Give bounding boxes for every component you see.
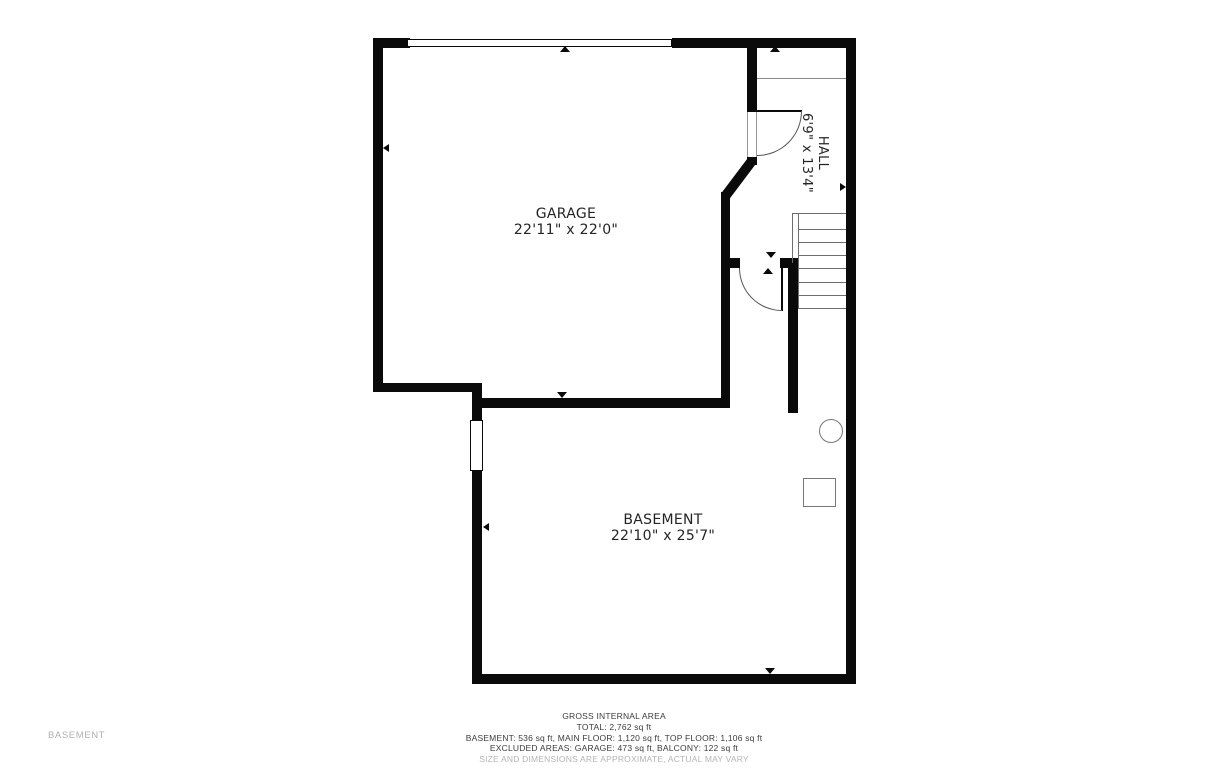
hall-landing-line (757, 78, 846, 79)
garage-door-symbol (407, 39, 672, 47)
staircase (792, 213, 846, 308)
area-summary-total: TOTAL: 2,762 sq ft (364, 722, 864, 733)
garage-room-dims: 22'11" x 22'0" (466, 222, 666, 238)
wall-basement-left-upper (472, 392, 482, 421)
marker-door-hall-side (766, 252, 776, 258)
area-summary-floors: BASEMENT: 536 sq ft, MAIN FLOOR: 1,120 s… (364, 733, 864, 744)
hall-room-name: HALL (814, 93, 830, 213)
marker-basement-bottom (765, 668, 775, 674)
hall-room-dims: 6'9" x 13'4" (798, 93, 814, 213)
area-summary: GROSS INTERNAL AREA TOTAL: 2,762 sq ft B… (364, 711, 864, 765)
wall-door-stub-left (721, 258, 740, 268)
marker-basement-top (557, 392, 567, 398)
stair-tread (798, 268, 846, 269)
garage-room-name: GARAGE (466, 206, 666, 222)
area-summary-disclaimer: SIZE AND DIMENSIONS ARE APPROXIMATE, ACT… (364, 754, 864, 765)
stair-tread (798, 229, 846, 230)
wall-bottom (472, 674, 856, 684)
wall-garage-bottom (373, 383, 482, 392)
wall-right (846, 38, 856, 684)
floor-name-tag: BASEMENT (48, 730, 105, 741)
wall-basement-top (472, 398, 730, 408)
wall-garage-left (373, 38, 383, 392)
garage-label: GARAGE 22'11" x 22'0" (466, 206, 666, 238)
utility-square (803, 478, 836, 507)
area-summary-excluded: EXCLUDED AREAS: GARAGE: 473 sq ft, BALCO… (364, 743, 864, 754)
stair-tread (798, 242, 846, 243)
basement-room-name: BASEMENT (563, 512, 763, 528)
wall-basement-left-lower (472, 470, 482, 674)
hall-label: HALL 6'9" x 13'4" (796, 93, 830, 213)
floorplan-page: GARAGE 22'11" x 22'0" BASEMENT 22'10" x … (0, 0, 1229, 768)
marker-door-basement-side (763, 268, 773, 274)
marker-hall-right (840, 183, 846, 191)
marker-basement-left (483, 523, 489, 531)
stair-tread (798, 282, 846, 283)
area-summary-title: GROSS INTERNAL AREA (364, 711, 864, 722)
hall-door-jamb (747, 112, 757, 157)
stair-tread (798, 308, 846, 309)
stair-tread (798, 255, 846, 256)
wall-hall-vertical (721, 192, 730, 407)
basement-label: BASEMENT 22'10" x 25'7" (563, 512, 763, 544)
marker-garage-door (560, 46, 570, 52)
basement-room-dims: 22'10" x 25'7" (563, 528, 763, 544)
marker-garage-left (383, 144, 389, 152)
wall-garage-hall-upper (747, 38, 757, 112)
water-tank-circle (819, 419, 843, 443)
marker-hall-top (770, 46, 780, 52)
stair-rail-line (792, 214, 793, 263)
window-symbol (470, 420, 483, 471)
wall-top-right (672, 38, 856, 48)
basement-door-arc (739, 268, 782, 311)
stair-tread (798, 295, 846, 296)
